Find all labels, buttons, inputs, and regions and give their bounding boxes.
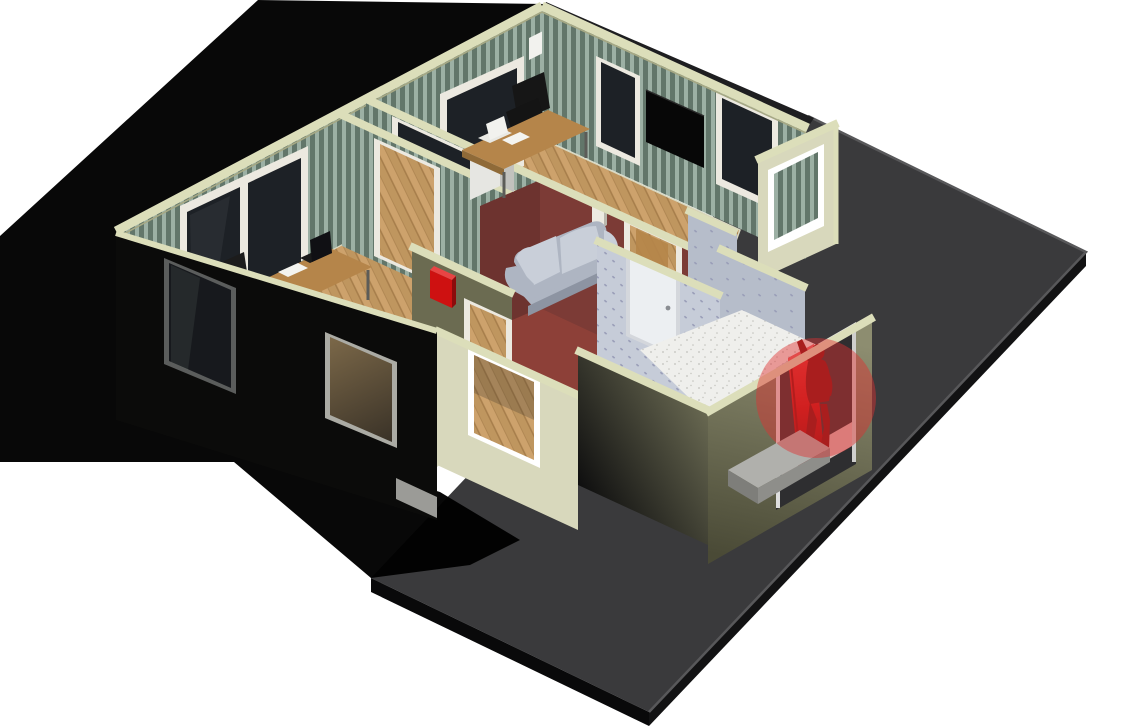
door-handle xyxy=(666,306,671,311)
floorplan-3d-render: 3D isometric cutaway floor-plan render xyxy=(0,0,1132,726)
person-alert-marker[interactable] xyxy=(756,338,876,458)
window-glass xyxy=(601,62,635,158)
render-viewport: 3D isometric cutaway floor-plan render xyxy=(0,0,1132,726)
alarm-box-side xyxy=(452,276,456,308)
